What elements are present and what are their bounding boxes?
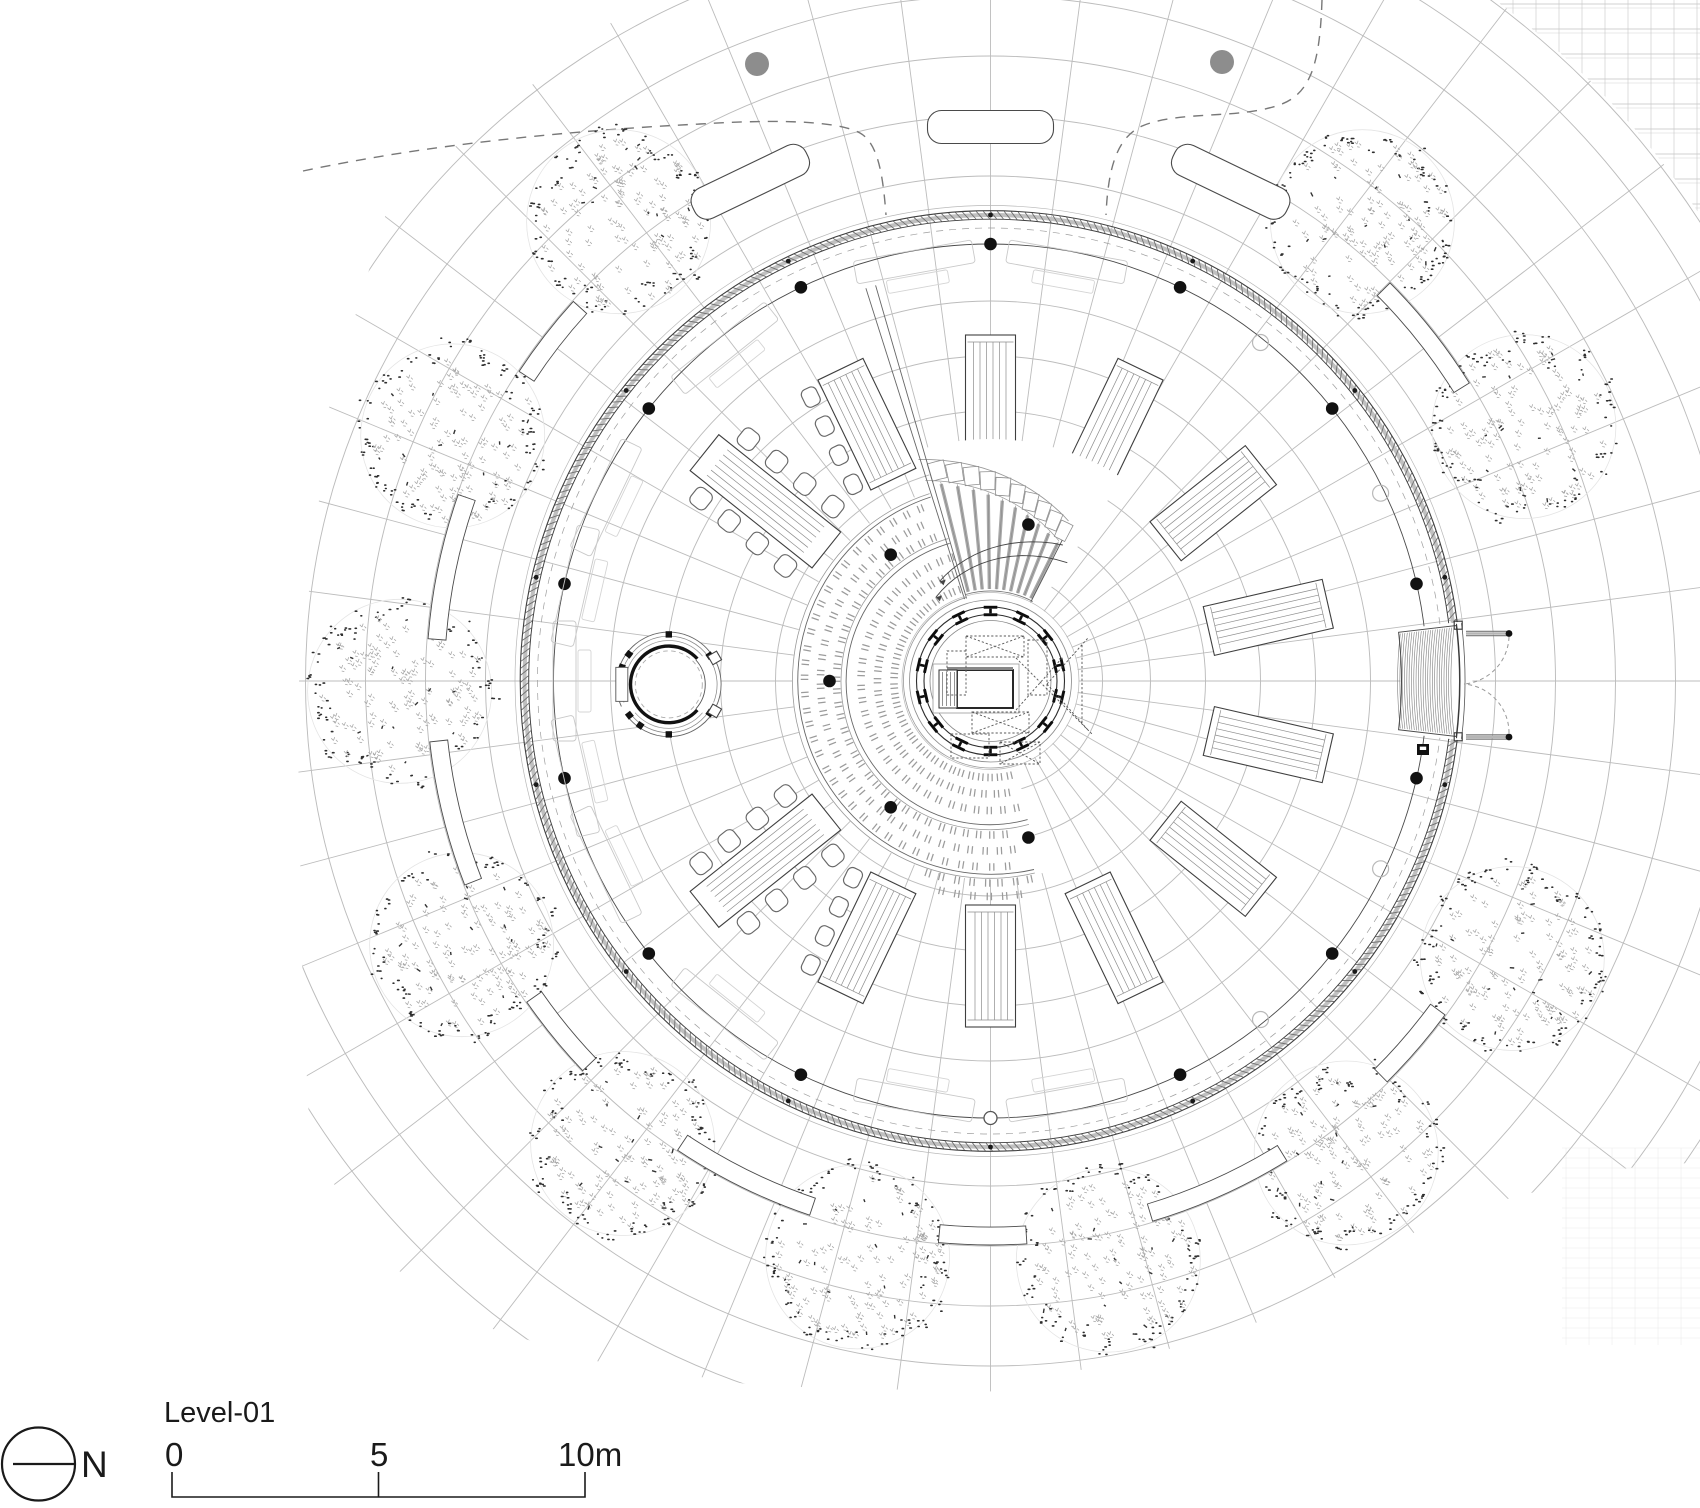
svg-text:Level-01: Level-01 (164, 1397, 275, 1429)
svg-text:0: 0 (165, 1436, 183, 1473)
svg-text:10m: 10m (558, 1436, 622, 1473)
svg-text:5: 5 (370, 1436, 388, 1473)
svg-text:N: N (81, 1444, 108, 1485)
